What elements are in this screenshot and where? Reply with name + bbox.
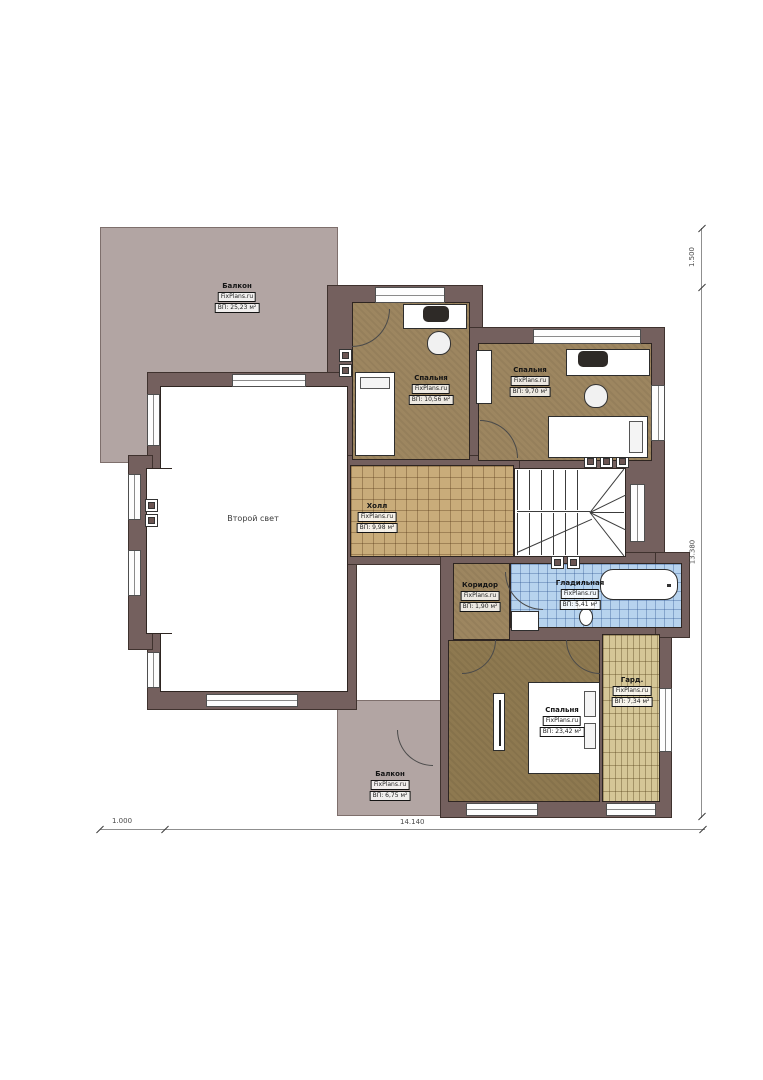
office-chair-icon	[584, 384, 608, 408]
dimension-right-top: 1.500	[688, 247, 696, 267]
office-chair-icon	[427, 331, 451, 355]
room-name: Спальня	[545, 706, 579, 715]
window-stairs-right	[630, 484, 645, 542]
column-marker	[339, 364, 352, 377]
dimension-tick	[698, 225, 706, 233]
room-area: ВП: 7,34 м²	[612, 697, 653, 707]
room-second-light	[160, 386, 348, 692]
room-name: Гладильная	[556, 579, 604, 588]
dimension-bottom-main: 14.140	[400, 818, 425, 826]
room-name: Спальня	[414, 374, 448, 383]
room-name: Коридор	[462, 581, 498, 590]
dimension-line-bottom	[100, 829, 705, 830]
brand-tag: FixPlans.ru	[218, 292, 256, 302]
bathtub	[600, 569, 678, 600]
brand-tag: FixPlans.ru	[412, 384, 450, 394]
window-bedroom2-right	[651, 385, 665, 441]
stairs-winder-line-3	[590, 512, 624, 513]
label-bedroom-top-left: Спальня FixPlans.ru ВП: 10,56 м²	[409, 374, 454, 405]
dimension-tick	[698, 284, 706, 292]
column-marker	[145, 514, 158, 527]
room-name: Балкон	[222, 282, 252, 291]
dimension-line-right	[701, 228, 702, 818]
brand-tag: FixPlans.ru	[613, 686, 651, 696]
label-hall: Холл FixPlans.ru ВП: 9,98 м²	[357, 502, 398, 533]
label-balcony-bottom: Балкон FixPlans.ru ВП: 6,75 м²	[370, 770, 411, 801]
window-bedroom2-top	[533, 329, 641, 344]
room-area: ВП: 9,98 м²	[357, 523, 398, 533]
brand-tag: FixPlans.ru	[461, 591, 499, 601]
room-name: Балкон	[375, 770, 405, 779]
dimension-right-main: 13.380	[688, 540, 696, 565]
column-marker	[145, 499, 158, 512]
dimension-tick	[698, 813, 706, 821]
window-master-bottom	[466, 803, 538, 816]
room-name: Холл	[367, 502, 387, 511]
stairs-lower-flight	[517, 513, 589, 555]
label-bedroom-master: Спальня FixPlans.ru ВП: 23,42 м²	[540, 706, 585, 737]
window-right-lower	[659, 688, 672, 752]
stairs-upper-flight	[517, 470, 589, 510]
window-wardrobe-bottom	[606, 803, 656, 816]
washer	[511, 611, 539, 631]
column-marker	[551, 556, 564, 569]
column-marker	[339, 349, 352, 362]
window-left-lower	[147, 652, 160, 688]
room-area: ВП: 1,90 м²	[460, 602, 501, 612]
brand-tag: FixPlans.ru	[511, 376, 549, 386]
room-second-light-bay	[146, 468, 172, 634]
column-marker	[567, 556, 580, 569]
label-second-light: Второй свет	[227, 514, 278, 523]
stairs-landing-line	[517, 511, 590, 512]
label-bedroom-top-right: Спальня FixPlans.ru ВП: 9,70 м²	[510, 366, 551, 397]
room-area: ВП: 6,75 м²	[370, 791, 411, 801]
label-corridor: Коридор FixPlans.ru ВП: 1,90 м²	[460, 581, 501, 612]
office-chair-dark-icon	[423, 306, 449, 322]
radiator-master	[493, 693, 505, 751]
window-second-light-left	[147, 394, 160, 446]
room-name: Спальня	[513, 366, 547, 375]
window-second-light-top	[232, 374, 306, 387]
brand-tag: FixPlans.ru	[358, 512, 396, 522]
room-area: ВП: 9,70 м²	[510, 387, 551, 397]
brand-tag: FixPlans.ru	[561, 589, 599, 599]
window-bedroom1-top	[375, 287, 445, 303]
window-bay-upper	[128, 474, 141, 520]
dimension-bottom-left: 1.000	[112, 817, 132, 825]
label-ironing: Гладильная FixPlans.ru ВП: 5,41 м²	[556, 579, 604, 610]
room-area: ВП: 10,56 м²	[409, 395, 454, 405]
floor-plan-canvas: Балкон FixPlans.ru ВП: 25,23 м² Спальня …	[0, 0, 763, 1080]
label-wardrobe: Гард. FixPlans.ru ВП: 7,34 м²	[612, 676, 653, 707]
wardrobe-cabinet-bedroom2	[476, 350, 492, 404]
room-area: ВП: 23,42 м²	[540, 727, 585, 737]
bed-bedroom2	[548, 416, 648, 458]
brand-tag: FixPlans.ru	[543, 716, 581, 726]
room-area: ВП: 5,41 м²	[560, 600, 601, 610]
room-area: ВП: 25,23 м²	[215, 303, 260, 313]
window-bay-lower	[128, 550, 141, 596]
window-second-light-bottom	[206, 694, 298, 707]
office-chair-dark-icon	[578, 351, 608, 367]
label-balcony-top: Балкон FixPlans.ru ВП: 25,23 м²	[215, 282, 260, 313]
brand-tag: FixPlans.ru	[371, 780, 409, 790]
toilet-bowl	[579, 608, 593, 626]
bed-bedroom1	[355, 372, 395, 456]
room-name: Гард.	[621, 676, 644, 685]
room-wardrobe	[602, 634, 660, 802]
